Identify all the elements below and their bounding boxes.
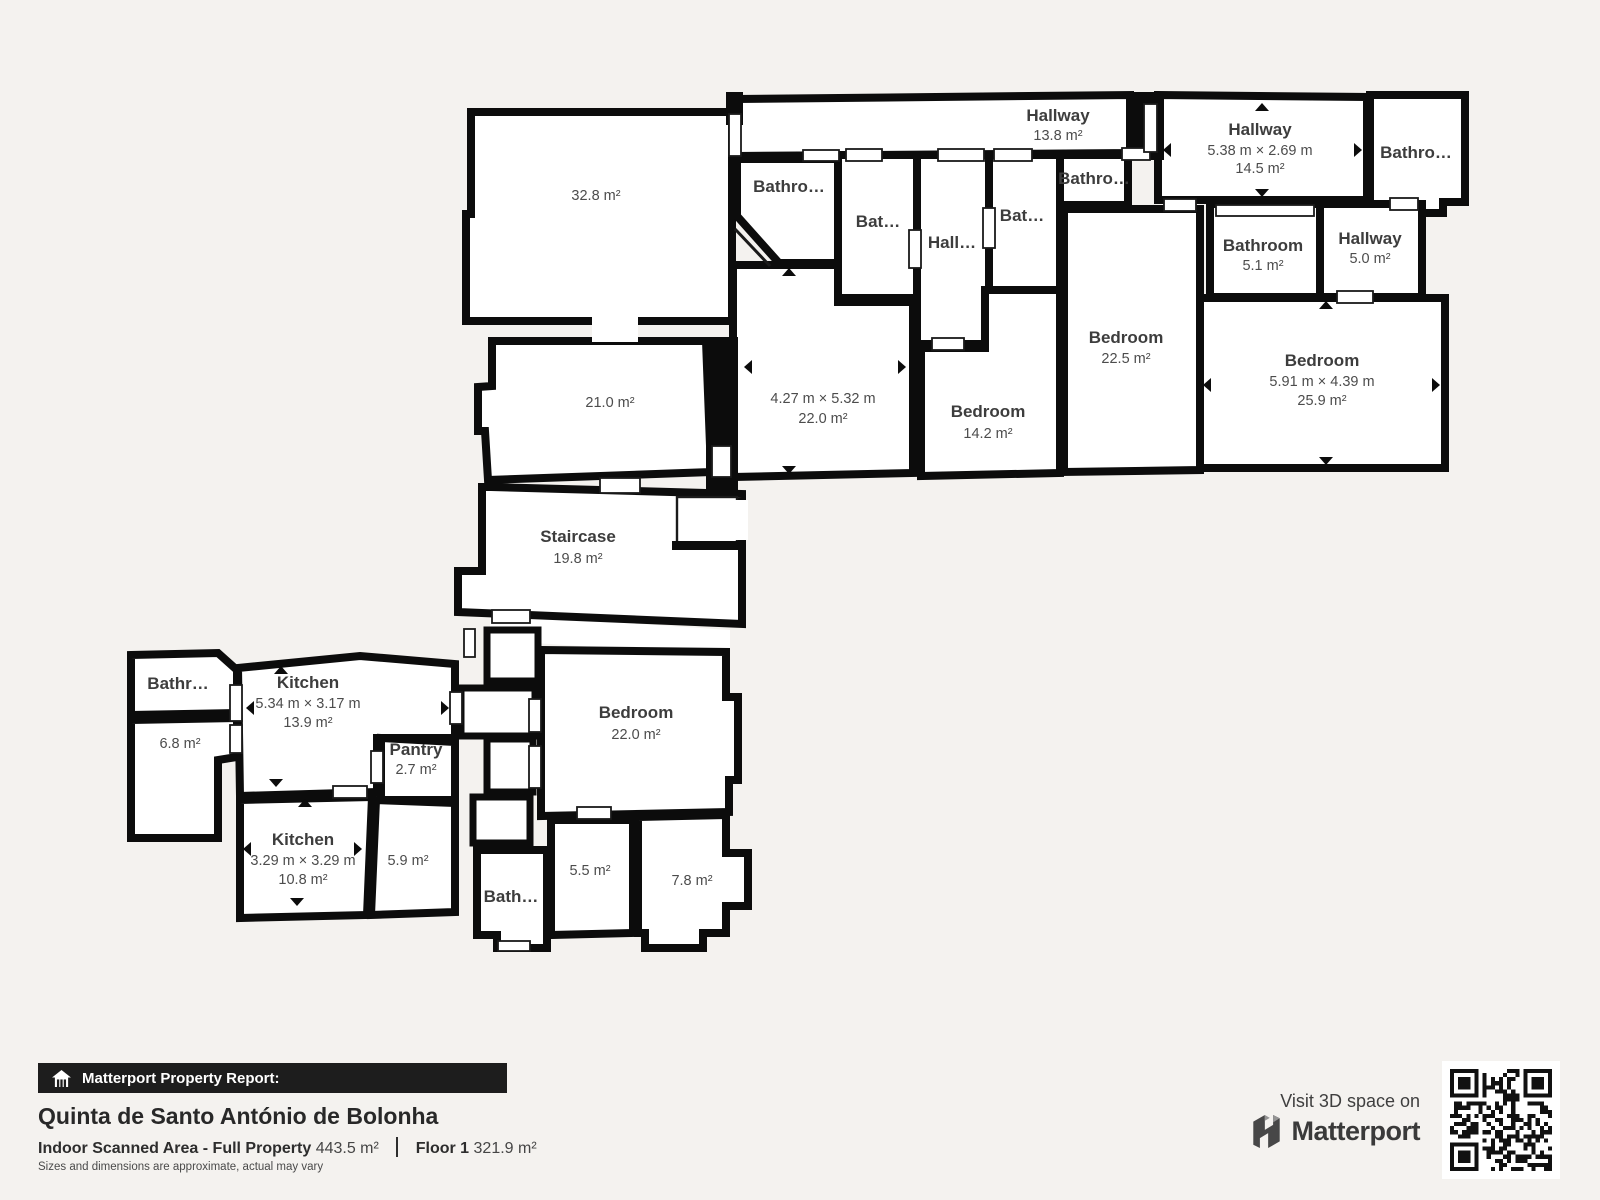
door-mark (450, 692, 462, 724)
floor-plan: 32.8 m² 21.0 m² Staircase 19.8 m² Hallwa… (0, 0, 1600, 1200)
room-hallway-top (737, 95, 1130, 156)
window-mark (1216, 205, 1314, 216)
door-mark (600, 478, 640, 493)
window-mark (464, 629, 475, 657)
label-bathroom-d-name: Bathro… (1058, 169, 1130, 188)
label-bedroom-259-dims: 5.91 m × 4.39 m (1269, 374, 1374, 390)
label-hallway-50-area: 5.0 m² (1349, 251, 1390, 267)
label-room-21-area: 21.0 m² (585, 395, 634, 411)
visit-3d-label: Visit 3D space on (1280, 1091, 1420, 1112)
door-gap (735, 500, 748, 540)
label-kitchen-139-area: 13.9 m² (283, 715, 332, 731)
label-bedroom-142-area: 14.2 m² (963, 426, 1012, 442)
label-staircase-area: 19.8 m² (553, 551, 602, 567)
label-hallway-14-name: Hallway (1228, 120, 1292, 139)
qr-code-svg (1450, 1069, 1552, 1171)
label-hallway-top-area: 13.8 m² (1033, 128, 1082, 144)
label-bedroom-225-area: 22.5 m² (1101, 351, 1150, 367)
door-mark (1164, 199, 1196, 211)
label-staircase-name: Staircase (540, 527, 616, 546)
label-bathroom-b-name: Bat… (856, 212, 900, 231)
label-kitchen-108-area: 10.8 m² (278, 872, 327, 888)
label-bathroom-s-name: Bath… (484, 887, 539, 906)
door-mark (577, 807, 611, 819)
label-kitchen-108-dims: 3.29 m × 3.29 m (250, 853, 355, 869)
stair-alcove (677, 497, 737, 543)
wall-patch (672, 541, 742, 550)
label-room-68-area: 6.8 m² (159, 736, 200, 752)
label-room-32-area: 32.8 m² (571, 188, 620, 204)
door-mark (333, 786, 367, 798)
label-room-78-area: 7.8 m² (671, 873, 712, 889)
door-mark (983, 208, 995, 248)
label-bedroom-142-name: Bedroom (951, 402, 1026, 421)
vestibule-3 (487, 739, 533, 792)
door-mark (909, 230, 921, 268)
label-bathroom-51-area: 5.1 m² (1242, 258, 1283, 274)
door-mark (994, 149, 1032, 161)
vestibule-1 (487, 630, 538, 681)
door-mark (1144, 104, 1157, 152)
property-name: Quinta de Santo António de Bolonha (38, 1103, 438, 1130)
label-bedroom-259-area: 25.9 m² (1297, 393, 1346, 409)
label-bedroom-22-area: 22.0 m² (611, 727, 660, 743)
label-bedroom-225-name: Bedroom (1089, 328, 1164, 347)
label-pantry-area: 2.7 m² (395, 762, 436, 778)
scanned-area-value: 443.5 m² (316, 1140, 379, 1157)
window-mark (498, 941, 530, 951)
scanned-area-label: Indoor Scanned Area - Full Property (38, 1140, 311, 1157)
report-banner: Matterport Property Report: (38, 1063, 507, 1093)
vestibule-4 (473, 797, 530, 843)
area-summary: Indoor Scanned Area - Full Property 443.… (38, 1137, 537, 1158)
house-icon (52, 1070, 71, 1087)
matterport-logo-icon (1250, 1113, 1283, 1150)
label-hallway-top-name: Hallway (1026, 106, 1090, 125)
disclaimer-text: Sizes and dimensions are approximate, ac… (38, 1161, 323, 1173)
label-bedroom-22-name: Bedroom (599, 703, 674, 722)
report-banner-label: Matterport Property Report: (82, 1070, 280, 1087)
door-mark (846, 149, 882, 161)
label-bathroom-51-name: Bathroom (1223, 236, 1303, 255)
matterport-wordmark: Matterport (1292, 1116, 1421, 1147)
door-mark (230, 725, 242, 753)
label-bathroom-a-name: Bathro… (753, 177, 825, 196)
door-mark (1390, 198, 1418, 210)
door-mark (1337, 291, 1373, 303)
matterport-brand: Matterport (1250, 1113, 1421, 1150)
door-mark (712, 446, 731, 477)
label-hallway-14-dims: 5.38 m × 2.69 m (1207, 143, 1312, 159)
label-kitchen-139-name: Kitchen (277, 673, 339, 692)
door-mark (529, 699, 541, 732)
label-room-22-dims: 4.27 m × 5.32 m (770, 391, 875, 407)
vestibule-2 (461, 688, 535, 736)
door-mark (230, 685, 242, 721)
label-hallway-50-name: Hallway (1338, 229, 1402, 248)
door-mark (371, 751, 383, 783)
label-kitchen-139-dims: 5.34 m × 3.17 m (255, 696, 360, 712)
door-mark (803, 150, 839, 161)
floor-label: Floor 1 (416, 1140, 469, 1157)
label-bathroom-k-name: Bathr… (147, 674, 208, 693)
door-mark (529, 746, 541, 788)
window-mark (729, 114, 741, 156)
property-report-page: 32.8 m² 21.0 m² Staircase 19.8 m² Hallwa… (0, 0, 1600, 1200)
label-hallway-14-area: 14.5 m² (1235, 161, 1284, 177)
door-mark (938, 149, 984, 161)
label-room-55-area: 5.5 m² (569, 863, 610, 879)
divider (396, 1137, 398, 1157)
label-bathroom-tr-name: Bathro… (1380, 143, 1452, 162)
label-pantry-name: Pantry (390, 740, 443, 759)
label-room-22-area: 22.0 m² (798, 411, 847, 427)
label-bathroom-c-name: Bat… (1000, 206, 1044, 225)
label-bedroom-259-name: Bedroom (1285, 351, 1360, 370)
floor-value: 321.9 m² (474, 1140, 537, 1157)
door-mark (492, 610, 530, 623)
room-32 (466, 112, 732, 321)
label-room-59-area: 5.9 m² (387, 853, 428, 869)
label-kitchen-108-name: Kitchen (272, 830, 334, 849)
door-mark (932, 338, 964, 350)
qr-code (1442, 1061, 1560, 1179)
door-gap (592, 316, 638, 342)
label-hallway-mid-name: Hall… (928, 233, 976, 252)
